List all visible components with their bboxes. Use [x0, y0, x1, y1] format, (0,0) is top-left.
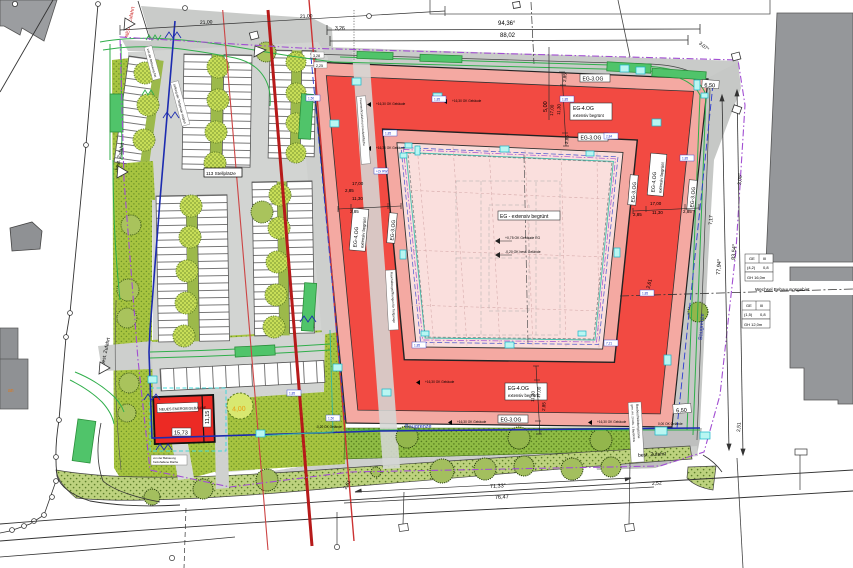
svg-text:3,28: 3,28: [313, 54, 320, 58]
svg-text:2,85: 2,85: [633, 212, 642, 217]
svg-text:an: an: [8, 388, 14, 394]
svg-text:17,00: 17,00: [352, 181, 364, 186]
svg-text:5,00: 5,00: [543, 101, 549, 112]
svg-text:94,36°: 94,36°: [498, 21, 516, 27]
svg-text:3,08°: 3,08°: [737, 173, 744, 185]
svg-text:2,85: 2,85: [350, 209, 359, 214]
svg-text:GH 16,0m: GH 16,0m: [747, 275, 766, 280]
svg-text:(1,5): (1,5): [744, 312, 753, 317]
svg-text:2,51: 2,51: [736, 422, 743, 432]
svg-text:7,21: 7,21: [606, 342, 612, 346]
svg-text:1,85: 1,85: [434, 98, 440, 102]
svg-text:3,26: 3,26: [335, 26, 345, 32]
svg-text:2,85: 2,85: [541, 402, 546, 412]
svg-text:15,73: 15,73: [174, 431, 188, 437]
svg-text:21,00: 21,00: [200, 19, 213, 26]
svg-text:76,47: 76,47: [495, 494, 509, 501]
svg-text:1,85: 1,85: [289, 392, 295, 396]
svg-text:11,15: 11,15: [205, 411, 211, 424]
svg-text:GE: GE: [749, 256, 755, 261]
svg-text:2,85: 2,85: [562, 73, 567, 83]
svg-text:GH 12,0m: GH 12,0m: [744, 322, 763, 327]
svg-text:0,00 OK Gelände: 0,00 OK Gelände: [658, 422, 683, 426]
svg-text:11,30: 11,30: [352, 196, 363, 201]
svg-text:1,50: 1,50: [328, 417, 334, 421]
svg-text:0,8: 0,8: [760, 312, 766, 317]
svg-text:17,00: 17,00: [549, 104, 555, 116]
svg-text:1,85: 1,85: [562, 98, 568, 102]
svg-text:(4,2): (4,2): [747, 265, 756, 270]
svg-text:III: III: [763, 256, 766, 261]
svg-text:0,8: 0,8: [763, 265, 769, 270]
svg-text:extensiv begrünt: extensiv begrünt: [573, 113, 605, 118]
svg-text:freizuhaltene Fläche: freizuhaltene Fläche: [153, 460, 179, 464]
svg-text:EG - extensiv begrünt: EG - extensiv begrünt: [500, 214, 549, 220]
svg-text:71,33°: 71,33°: [490, 483, 506, 490]
svg-text:+0,75 OK Gebäude EG: +0,75 OK Gebäude EG: [505, 236, 541, 240]
svg-text:Baugrenze: Baugrenze: [405, 424, 432, 430]
svg-text:EG-3.OG: EG-3.OG: [501, 418, 522, 424]
svg-text:113 Stellplätze: 113 Stellplätze: [206, 171, 236, 176]
svg-text:+16,30 OK Gebäude: +16,30 OK Gebäude: [376, 146, 406, 150]
svg-text:III: III: [760, 303, 763, 308]
svg-text:-0,20 OK Gelände: -0,20 OK Gelände: [316, 425, 342, 429]
svg-text:17,00: 17,00: [650, 201, 662, 206]
svg-text:1,50: 1,50: [308, 97, 314, 101]
svg-text:7,17: 7,17: [708, 215, 715, 225]
svg-text:+16,30 OK Gebäude: +16,30 OK Gebäude: [457, 420, 487, 424]
svg-text:+16,30 OK Gebäude: +16,30 OK Gebäude: [376, 102, 406, 106]
svg-text:21,00: 21,00: [300, 13, 313, 20]
svg-text:EG-4.OG: EG-4.OG: [573, 106, 594, 112]
svg-text:17,00: 17,00: [536, 386, 542, 398]
svg-text:+16,30 OK Gebäude: +16,30 OK Gebäude: [597, 420, 627, 424]
svg-text:GE: GE: [746, 303, 752, 308]
svg-text:83,54°: 83,54°: [731, 244, 738, 260]
svg-text:+16,30 OK Gebäude: +16,30 OK Gebäude: [452, 99, 482, 103]
svg-text:2,52: 2,52: [652, 480, 662, 487]
svg-text:2,85: 2,85: [345, 188, 354, 193]
svg-text:-0,20 OK best. Gelände: -0,20 OK best. Gelände: [505, 250, 541, 254]
svg-text:EG-3.OG: EG-3.OG: [583, 77, 604, 83]
svg-text:1,85: 1,85: [682, 157, 688, 161]
svg-text:EG-4.OG: EG-4.OG: [508, 386, 529, 392]
svg-text:1,85: 1,85: [642, 292, 648, 296]
svg-text:2,85: 2,85: [683, 209, 692, 214]
svg-text:11,30: 11,30: [556, 103, 562, 115]
svg-text:2,85: 2,85: [564, 135, 569, 145]
svg-text:+2x RW: +2x RW: [376, 170, 387, 174]
svg-text:88,02: 88,02: [500, 33, 516, 39]
svg-text:11,30: 11,30: [530, 390, 536, 402]
svg-text:+16,30 OK Gebäude: +16,30 OK Gebäude: [425, 380, 455, 384]
svg-text:1,85: 1,85: [414, 344, 420, 348]
svg-text:6,50: 6,50: [704, 83, 715, 90]
svg-text:11,30: 11,30: [652, 210, 663, 215]
svg-text:6,50: 6,50: [676, 408, 687, 415]
svg-text:Wechsel Bebauungsgebiet: Wechsel Bebauungsgebiet: [755, 287, 810, 292]
svg-text:1,85: 1,85: [385, 132, 391, 136]
svg-text:2,84: 2,84: [606, 135, 612, 139]
svg-text:2,25: 2,25: [316, 64, 323, 68]
svg-text:77,94°: 77,94°: [716, 259, 723, 275]
svg-text:4,00: 4,00: [232, 406, 246, 414]
svg-text:EG-3.OG: EG-3.OG: [581, 136, 602, 142]
